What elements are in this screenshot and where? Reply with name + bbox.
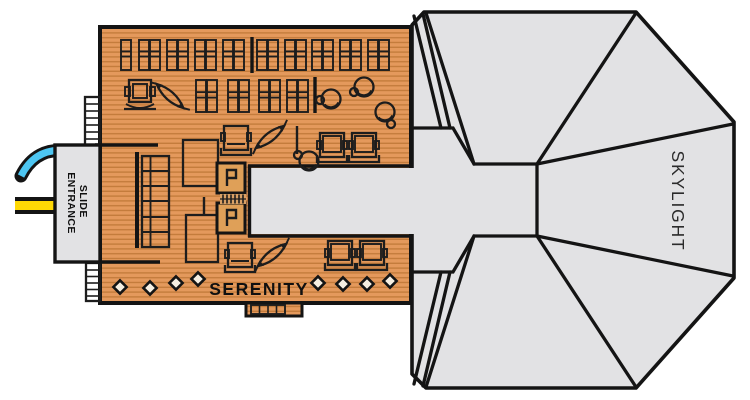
slide-entrance: SLIDE ENTRANCE (15, 145, 100, 262)
deck-name-label: SERENITY (209, 279, 309, 299)
deck-ladder (85, 97, 100, 145)
flag-station (217, 163, 245, 193)
deck-stair-notch (246, 303, 302, 316)
flag-station (217, 203, 245, 233)
skylight-label: SKYLIGHT (668, 151, 688, 252)
deck-ladder (86, 263, 100, 301)
yellow-slide (15, 197, 57, 214)
deck-plan-image: SKYLIGHT (0, 0, 750, 400)
corridor-steps (220, 194, 246, 204)
center-corridor (248, 165, 416, 237)
skylight-structure: SKYLIGHT (412, 12, 734, 388)
deck-plan-svg: SKYLIGHT (0, 0, 750, 400)
